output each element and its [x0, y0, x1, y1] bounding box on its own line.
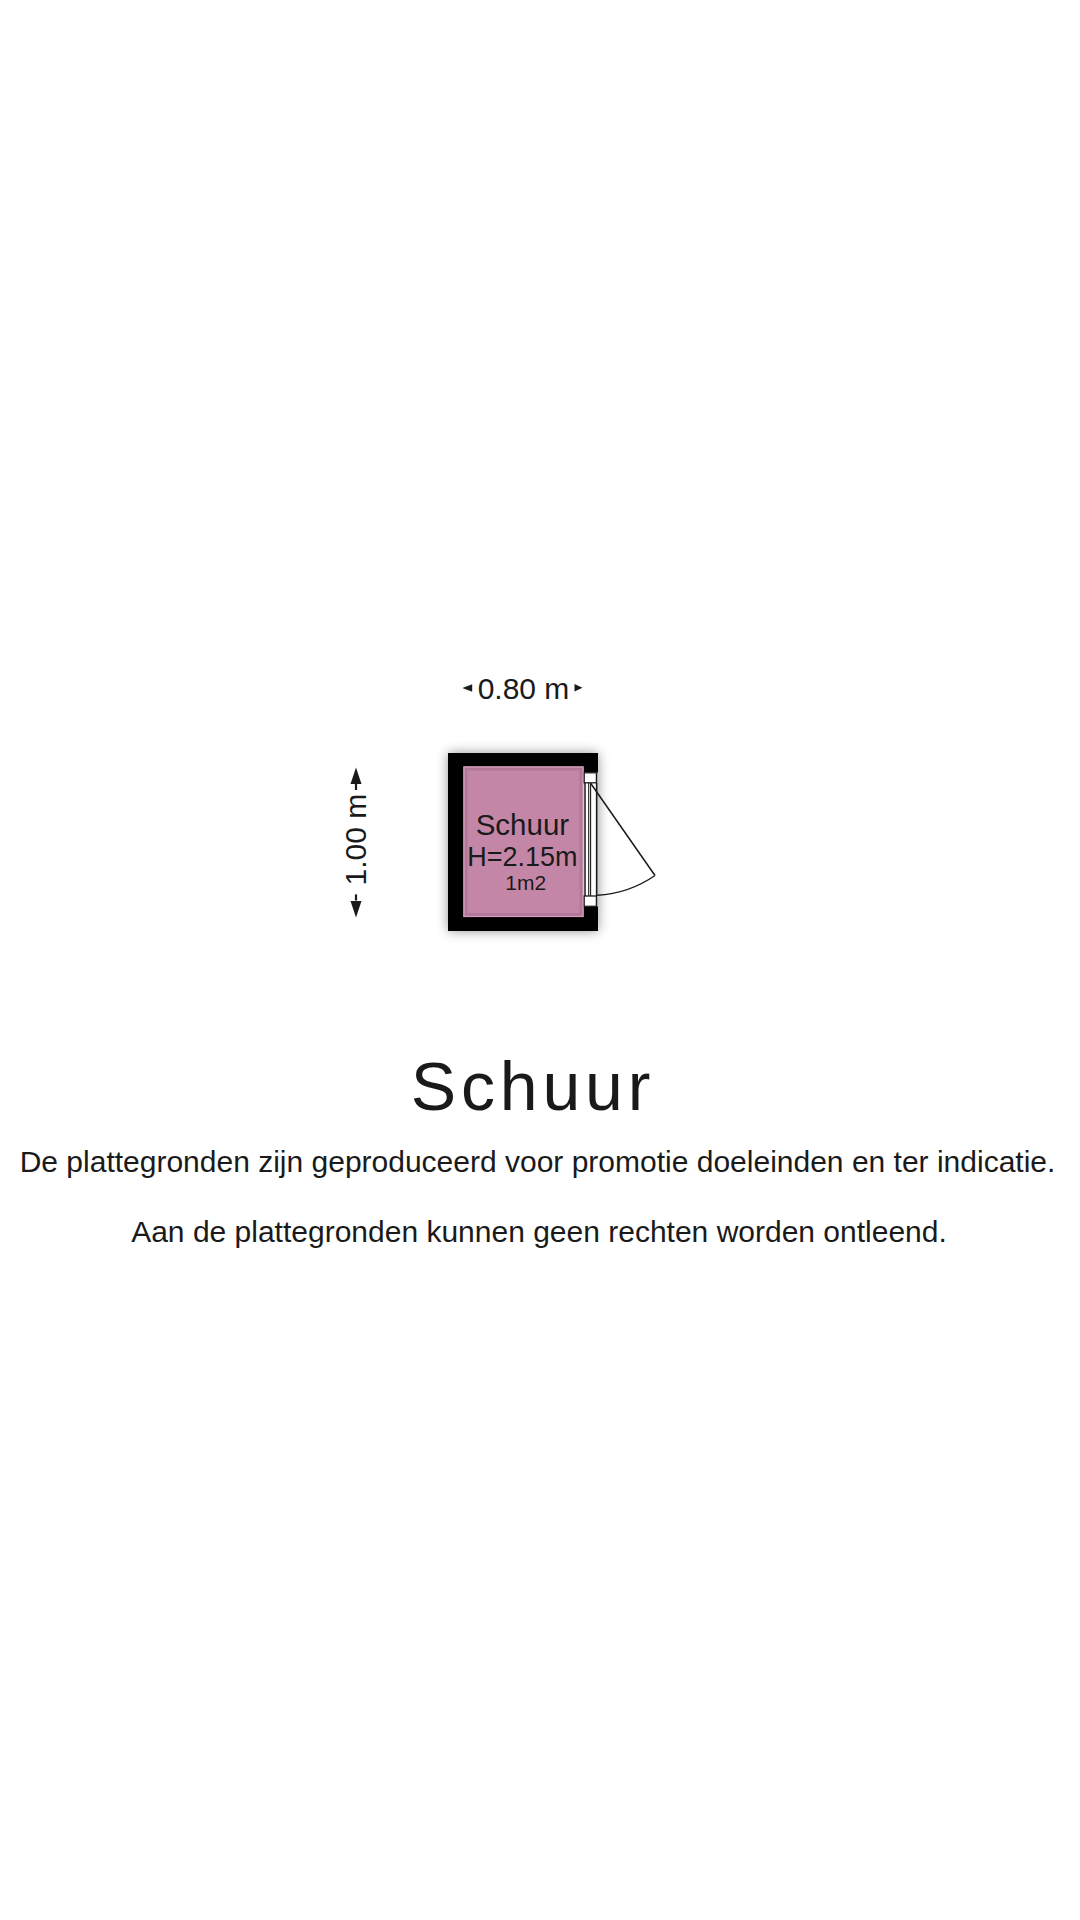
svg-text:Aan de plattegronden kunnen ge: Aan de plattegronden kunnen geen rechten… — [131, 1215, 947, 1248]
svg-text:1.00 m: 1.00 m — [339, 794, 372, 886]
svg-text:Schuur: Schuur — [476, 808, 570, 841]
svg-text:Schuur: Schuur — [411, 1048, 655, 1124]
svg-text:De plattegronden zijn geproduc: De plattegronden zijn geproduceerd voor … — [20, 1145, 1056, 1178]
svg-text:H=2.15m: H=2.15m — [467, 842, 577, 872]
svg-text:0.80 m: 0.80 m — [478, 672, 570, 705]
svg-text:1m2: 1m2 — [505, 871, 546, 894]
